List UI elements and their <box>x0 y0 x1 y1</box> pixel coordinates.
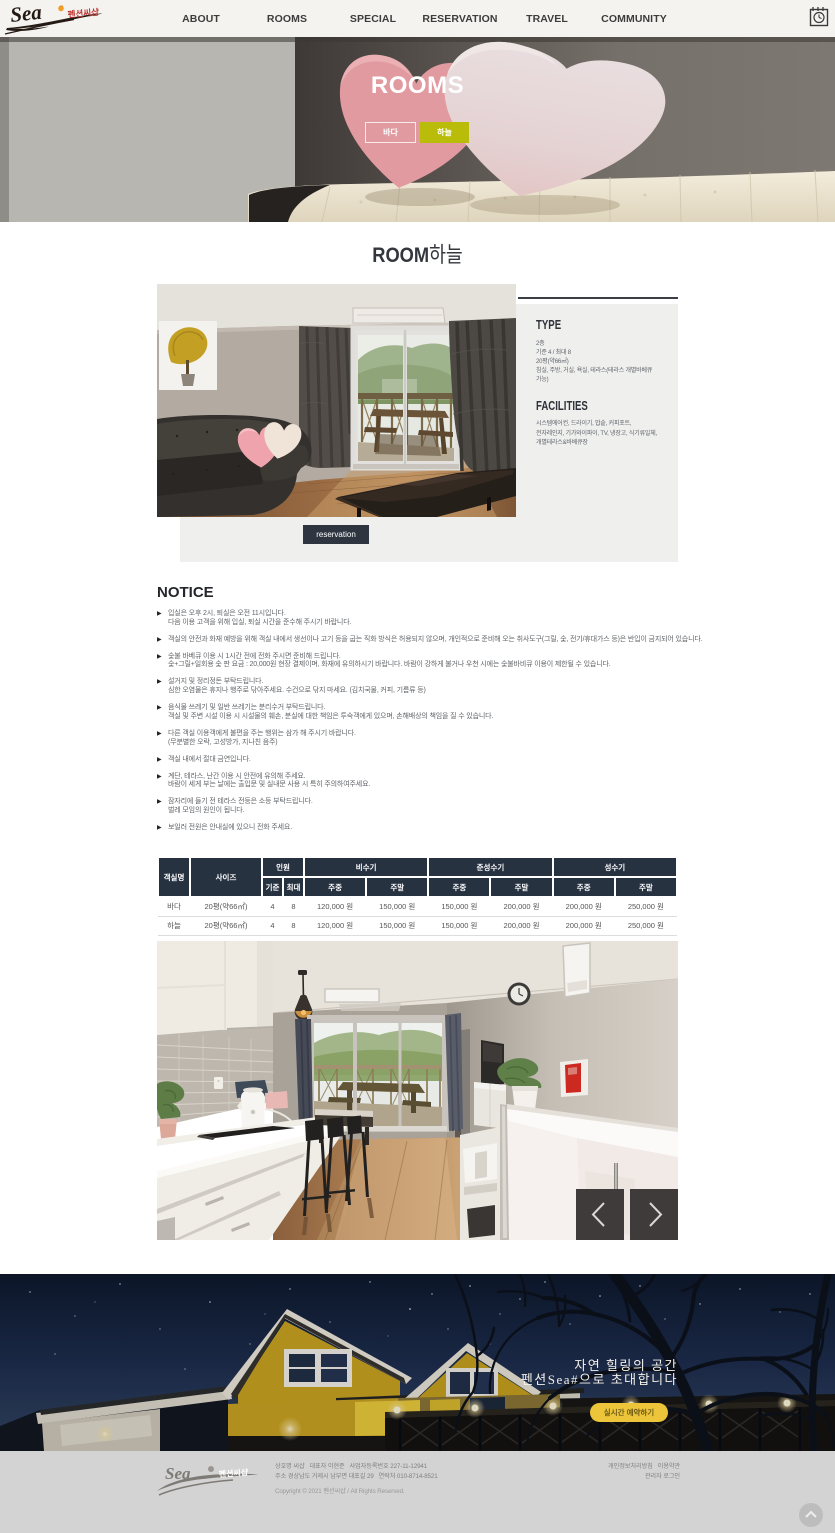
svg-text:Sea: Sea <box>165 1464 191 1483</box>
svg-text:펜션씨샵: 펜션씨샵 <box>218 1467 249 1479</box>
